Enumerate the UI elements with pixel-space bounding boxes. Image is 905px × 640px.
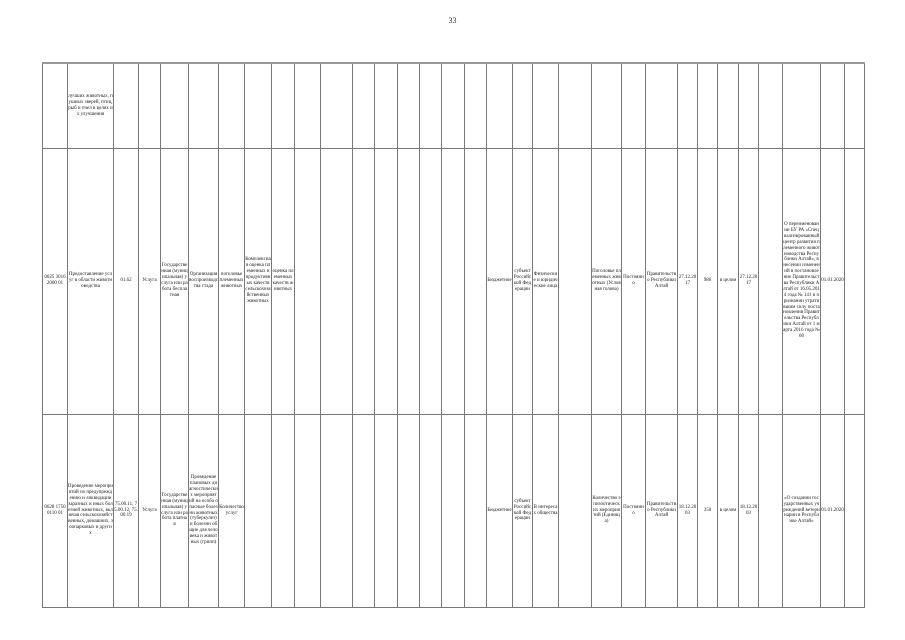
table-row: лучших животных, пушных зверей, птиц, ры… xyxy=(43,63,865,148)
table-cell xyxy=(398,148,420,414)
table-cell xyxy=(161,63,189,148)
table-cell xyxy=(420,148,442,414)
table-cell xyxy=(420,414,442,607)
table-cell xyxy=(559,148,592,414)
table-cell: В интересах общества xyxy=(533,414,559,607)
table-cell: Бюджетное xyxy=(487,148,513,414)
table-cell xyxy=(513,63,533,148)
table-cell: Государственная (муниципальная) услуга и… xyxy=(161,148,189,414)
document-table: лучших животных, пушных зверей, птиц, ры… xyxy=(42,62,865,608)
table-cell xyxy=(295,148,321,414)
table-cell: Количество эпизоотических мероприятий (Е… xyxy=(592,414,622,607)
table-cell xyxy=(43,63,68,148)
table-cell xyxy=(272,63,295,148)
table-cell: 01.62 xyxy=(114,148,139,414)
table-cell xyxy=(678,63,698,148)
table-cell xyxy=(321,148,353,414)
table-cell: Правительство Республики Алтай xyxy=(646,414,678,607)
table-cell: поголовье племенных животных xyxy=(219,148,245,414)
table-cell: Физические и юридические лица xyxy=(533,148,559,414)
table-cell xyxy=(592,63,622,148)
table-cell: Проведение плановых диагностических меро… xyxy=(189,414,219,607)
table-cell xyxy=(272,414,295,607)
table-cell xyxy=(219,63,245,148)
table-cell xyxy=(698,63,718,148)
table-cell xyxy=(139,63,161,148)
table-cell xyxy=(783,63,821,148)
table-cell xyxy=(442,63,465,148)
table-cell xyxy=(718,63,739,148)
table-cell xyxy=(375,148,398,414)
table-cell: в целом xyxy=(718,414,739,607)
table-cell: 27.12.2017 xyxy=(678,148,698,414)
table-cell: оценка племенных качеств животных xyxy=(272,148,295,414)
table-cell xyxy=(295,63,321,148)
table-cell: «О создании государственных учреждений в… xyxy=(783,414,821,607)
table-cell xyxy=(114,63,139,148)
table-cell xyxy=(533,63,559,148)
table-cell xyxy=(559,63,592,148)
table-cell xyxy=(353,63,375,148)
table-cell: 986 xyxy=(698,148,718,414)
table-cell xyxy=(739,63,759,148)
table-cell xyxy=(353,148,375,414)
table-cell: в целом xyxy=(718,148,739,414)
table-cell xyxy=(646,63,678,148)
table-cell: 01.01.2020 xyxy=(821,414,845,607)
table-cell: Комплексная оценка племенных и продуктив… xyxy=(245,148,272,414)
table-cell: Постоянно xyxy=(622,148,646,414)
table-cell: 350 xyxy=(698,414,718,607)
table-cell: Поголовье племенных животных (Условная г… xyxy=(592,148,622,414)
table-cell xyxy=(845,148,865,414)
table-cell xyxy=(398,414,420,607)
table-cell: субъект Российской Федерации xyxy=(513,148,533,414)
table-cell xyxy=(189,63,219,148)
table-cell xyxy=(321,414,353,607)
table-cell xyxy=(375,414,398,607)
table-cell: 27.12.2017 xyxy=(739,148,759,414)
table-cell: Постоянно xyxy=(622,414,646,607)
table-cell xyxy=(465,63,487,148)
table-cell: Услуга xyxy=(139,148,161,414)
table-cell: Предоставление услуг в области животново… xyxy=(68,148,114,414)
table-cell xyxy=(622,63,646,148)
table-cell xyxy=(845,63,865,148)
table-cell xyxy=(420,63,442,148)
table-cell: 75.00.11, 75.00.12, 75.00.19 xyxy=(114,414,139,607)
table-cell xyxy=(821,63,845,148)
table-cell: О переименовании БУ РА «Специализированн… xyxy=(783,148,821,414)
table-cell: Бюджетное xyxy=(487,414,513,607)
table-cell xyxy=(759,63,783,148)
table-cell: субъект Российской Федерации xyxy=(513,414,533,607)
table-cell xyxy=(487,63,513,148)
table-cell xyxy=(321,63,353,148)
table-cell xyxy=(353,414,375,607)
table-row: 0625 3016 2000 01 Предоставление услуг в… xyxy=(43,148,865,414)
table-cell: Правительство Республики Алтай xyxy=(646,148,678,414)
table-cell xyxy=(398,63,420,148)
page-number: 33 xyxy=(0,16,905,25)
table-cell xyxy=(759,414,783,607)
table-cell: Количество услуг xyxy=(219,414,245,607)
table-cell xyxy=(245,414,272,607)
table-cell: 0625 3016 2000 01 xyxy=(43,148,68,414)
table-cell xyxy=(465,414,487,607)
table-cell xyxy=(465,148,487,414)
table-cell xyxy=(375,63,398,148)
table-cell: 01.01.2020 xyxy=(821,148,845,414)
table-cell xyxy=(295,414,321,607)
table-cell: 0628 1750 0110 01 xyxy=(43,414,68,607)
table-cell xyxy=(845,414,865,607)
table-row: 0628 1750 0110 01 Проведение мероприятий… xyxy=(43,414,865,607)
table-cell: Услуга xyxy=(139,414,161,607)
table-cell: 18.12.2003 xyxy=(739,414,759,607)
table-cell xyxy=(559,414,592,607)
table-cell: Организация воспроизводства стада xyxy=(189,148,219,414)
table-cell: 18.12.2003 xyxy=(678,414,698,607)
table-cell: Проведение мероприятий по предупреждению… xyxy=(68,414,114,607)
table-cell: лучших животных, пушных зверей, птиц, ры… xyxy=(68,63,114,148)
table-cell xyxy=(442,148,465,414)
table-cell xyxy=(442,414,465,607)
table-cell xyxy=(759,148,783,414)
table-cell xyxy=(245,63,272,148)
table-cell: Государственная (муниципальная) услуга и… xyxy=(161,414,189,607)
